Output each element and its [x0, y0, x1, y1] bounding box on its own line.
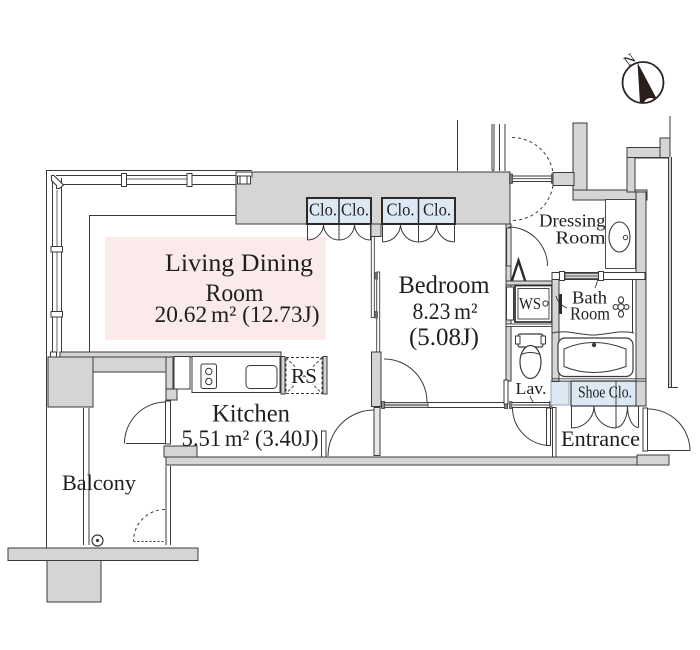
svg-text:Balcony: Balcony [62, 470, 136, 495]
svg-text:Room: Room [556, 228, 606, 248]
svg-text:5.51 m² (3.40J): 5.51 m² (3.40J) [182, 426, 319, 451]
svg-text:(5.08J): (5.08J) [409, 324, 479, 351]
svg-text:RS: RS [291, 364, 317, 388]
svg-text:Lav.: Lav. [516, 379, 547, 398]
svg-text:Living Dining: Living Dining [165, 250, 314, 277]
svg-text:Clo.: Clo. [387, 200, 415, 220]
svg-text:Clo.: Clo. [423, 200, 451, 220]
svg-text:Shoe Clo.: Shoe Clo. [578, 383, 632, 402]
svg-text:Clo.: Clo. [309, 200, 337, 220]
svg-text:Clo.: Clo. [341, 200, 369, 220]
svg-text:WS: WS [519, 294, 541, 313]
svg-text:20.62 m² (12.73J): 20.62 m² (12.73J) [155, 302, 320, 327]
svg-text:8.23 m²: 8.23 m² [413, 299, 478, 324]
svg-text:Entrance: Entrance [561, 426, 640, 451]
svg-text:Room: Room [570, 304, 610, 324]
svg-text:Kitchen: Kitchen [212, 401, 290, 428]
svg-text:Bedroom: Bedroom [399, 272, 491, 299]
